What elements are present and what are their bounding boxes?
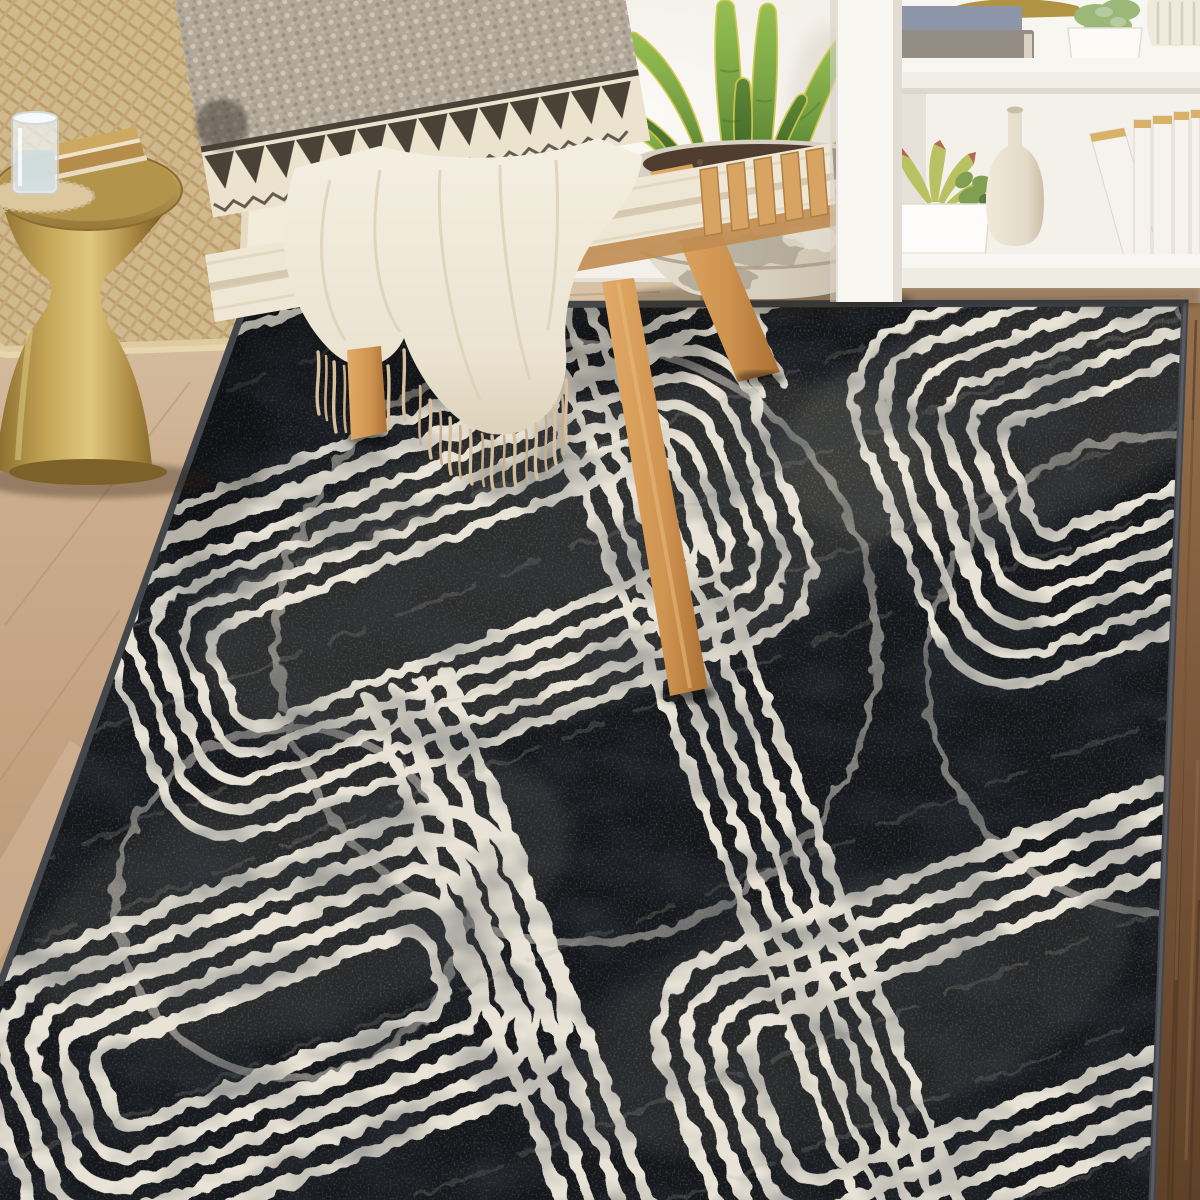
scene-svg (0, 0, 1200, 1200)
bench-leg-front-left (347, 346, 387, 440)
shelf-succulent-top (1068, 0, 1142, 64)
ribbed-vessel (1147, 0, 1200, 46)
white-shelf (830, 0, 1200, 306)
shelf-board-top (900, 58, 1200, 72)
lifestyle-photo (0, 0, 1200, 1200)
water-glass (12, 112, 58, 194)
photo-canvas (0, 0, 1200, 1200)
shelf-bottom-board (900, 254, 1200, 268)
shelf-side-panel (836, 0, 902, 302)
